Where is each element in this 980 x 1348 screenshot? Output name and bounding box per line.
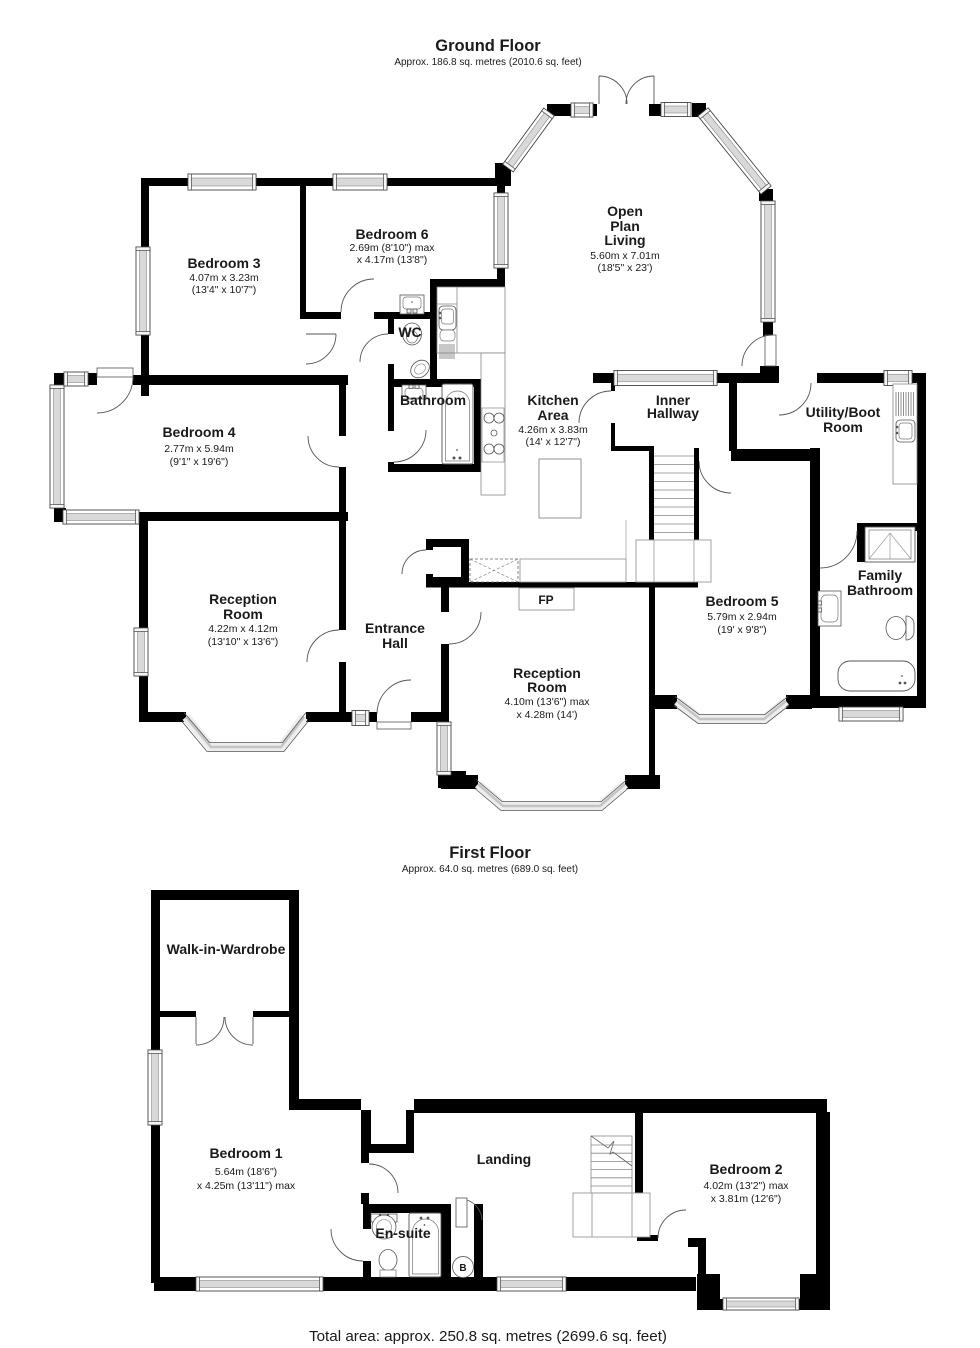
svg-text:Hall: Hall	[382, 635, 408, 651]
svg-text:(14' x 12'7"): (14' x 12'7")	[525, 436, 580, 448]
svg-text:Total area: approx. 250.8 sq.: Total area: approx. 250.8 sq. metres (26…	[309, 1328, 667, 1345]
svg-text:x 4.25m (13'11") max: x 4.25m (13'11") max	[197, 1180, 296, 1192]
svg-text:Bedroom 3: Bedroom 3	[187, 255, 260, 271]
svg-text:Utility/Boot: Utility/Boot	[806, 404, 881, 420]
svg-text:Family: Family	[858, 567, 903, 583]
svg-text:(13'4" x 10'7"): (13'4" x 10'7")	[192, 284, 257, 296]
svg-text:(19' x 9'8"): (19' x 9'8")	[717, 624, 766, 636]
svg-text:Room: Room	[527, 679, 567, 695]
svg-text:Ground Floor: Ground Floor	[435, 37, 541, 55]
svg-text:x 4.17m (13'8"): x 4.17m (13'8")	[357, 254, 428, 266]
svg-text:(9'1" x 19'6"): (9'1" x 19'6")	[170, 456, 229, 468]
svg-text:Room: Room	[823, 419, 863, 435]
svg-text:Approx. 186.8 sq. metres (2010: Approx. 186.8 sq. metres (2010.6 sq. fee…	[394, 57, 581, 68]
svg-text:Bedroom 1: Bedroom 1	[209, 1145, 282, 1161]
svg-text:4.02m (13'2") max: 4.02m (13'2") max	[703, 1180, 789, 1192]
svg-text:Bathroom: Bathroom	[400, 392, 466, 408]
svg-text:(13'10" x 13'6"): (13'10" x 13'6")	[208, 636, 278, 648]
svg-text:Room: Room	[223, 606, 263, 622]
svg-text:Bathroom: Bathroom	[847, 582, 913, 598]
svg-text:5.79m x 2.94m: 5.79m x 2.94m	[707, 611, 777, 623]
svg-text:4.22m x 4.12m: 4.22m x 4.12m	[208, 623, 278, 635]
svg-text:2.69m (8'10") max: 2.69m (8'10") max	[349, 242, 435, 254]
svg-text:5.64m (18'6"): 5.64m (18'6")	[215, 1166, 277, 1178]
svg-text:Living: Living	[604, 232, 645, 248]
svg-text:Walk-in-Wardrobe: Walk-in-Wardrobe	[167, 941, 286, 957]
svg-text:Landing: Landing	[477, 1151, 531, 1167]
svg-text:Bedroom 2: Bedroom 2	[709, 1161, 782, 1177]
svg-text:4.07m x 3.23m: 4.07m x 3.23m	[189, 272, 259, 284]
svg-text:Reception: Reception	[209, 591, 277, 607]
svg-text:Entrance: Entrance	[365, 620, 425, 636]
svg-text:5.60m x 7.01m: 5.60m x 7.01m	[590, 250, 660, 262]
svg-text:Approx. 64.0 sq. metres (689.0: Approx. 64.0 sq. metres (689.0 sq. feet)	[402, 864, 578, 875]
svg-text:Hallway: Hallway	[647, 405, 699, 421]
svg-text:Bedroom 5: Bedroom 5	[705, 593, 778, 609]
svg-text:En-suite: En-suite	[375, 1225, 430, 1241]
svg-text:2.77m x 5.94m: 2.77m x 5.94m	[164, 443, 234, 455]
svg-text:x 4.28m (14'): x 4.28m (14')	[517, 709, 578, 721]
svg-text:(18'5" x 23'): (18'5" x 23')	[597, 262, 652, 274]
svg-text:Bedroom 6: Bedroom 6	[355, 226, 428, 242]
svg-text:Area: Area	[537, 407, 568, 423]
svg-text:B: B	[459, 1263, 466, 1274]
svg-text:Kitchen: Kitchen	[527, 392, 578, 408]
svg-text:4.26m x 3.83m: 4.26m x 3.83m	[518, 424, 588, 436]
svg-text:WC: WC	[398, 324, 421, 340]
svg-text:FP: FP	[538, 593, 553, 607]
svg-text:x 3.81m (12'6"): x 3.81m (12'6")	[711, 1193, 782, 1205]
svg-text:Open: Open	[607, 203, 643, 219]
svg-text:4.10m (13'6") max: 4.10m (13'6") max	[504, 696, 590, 708]
svg-text:First Floor: First Floor	[449, 844, 531, 862]
svg-text:Bedroom 4: Bedroom 4	[162, 424, 235, 440]
